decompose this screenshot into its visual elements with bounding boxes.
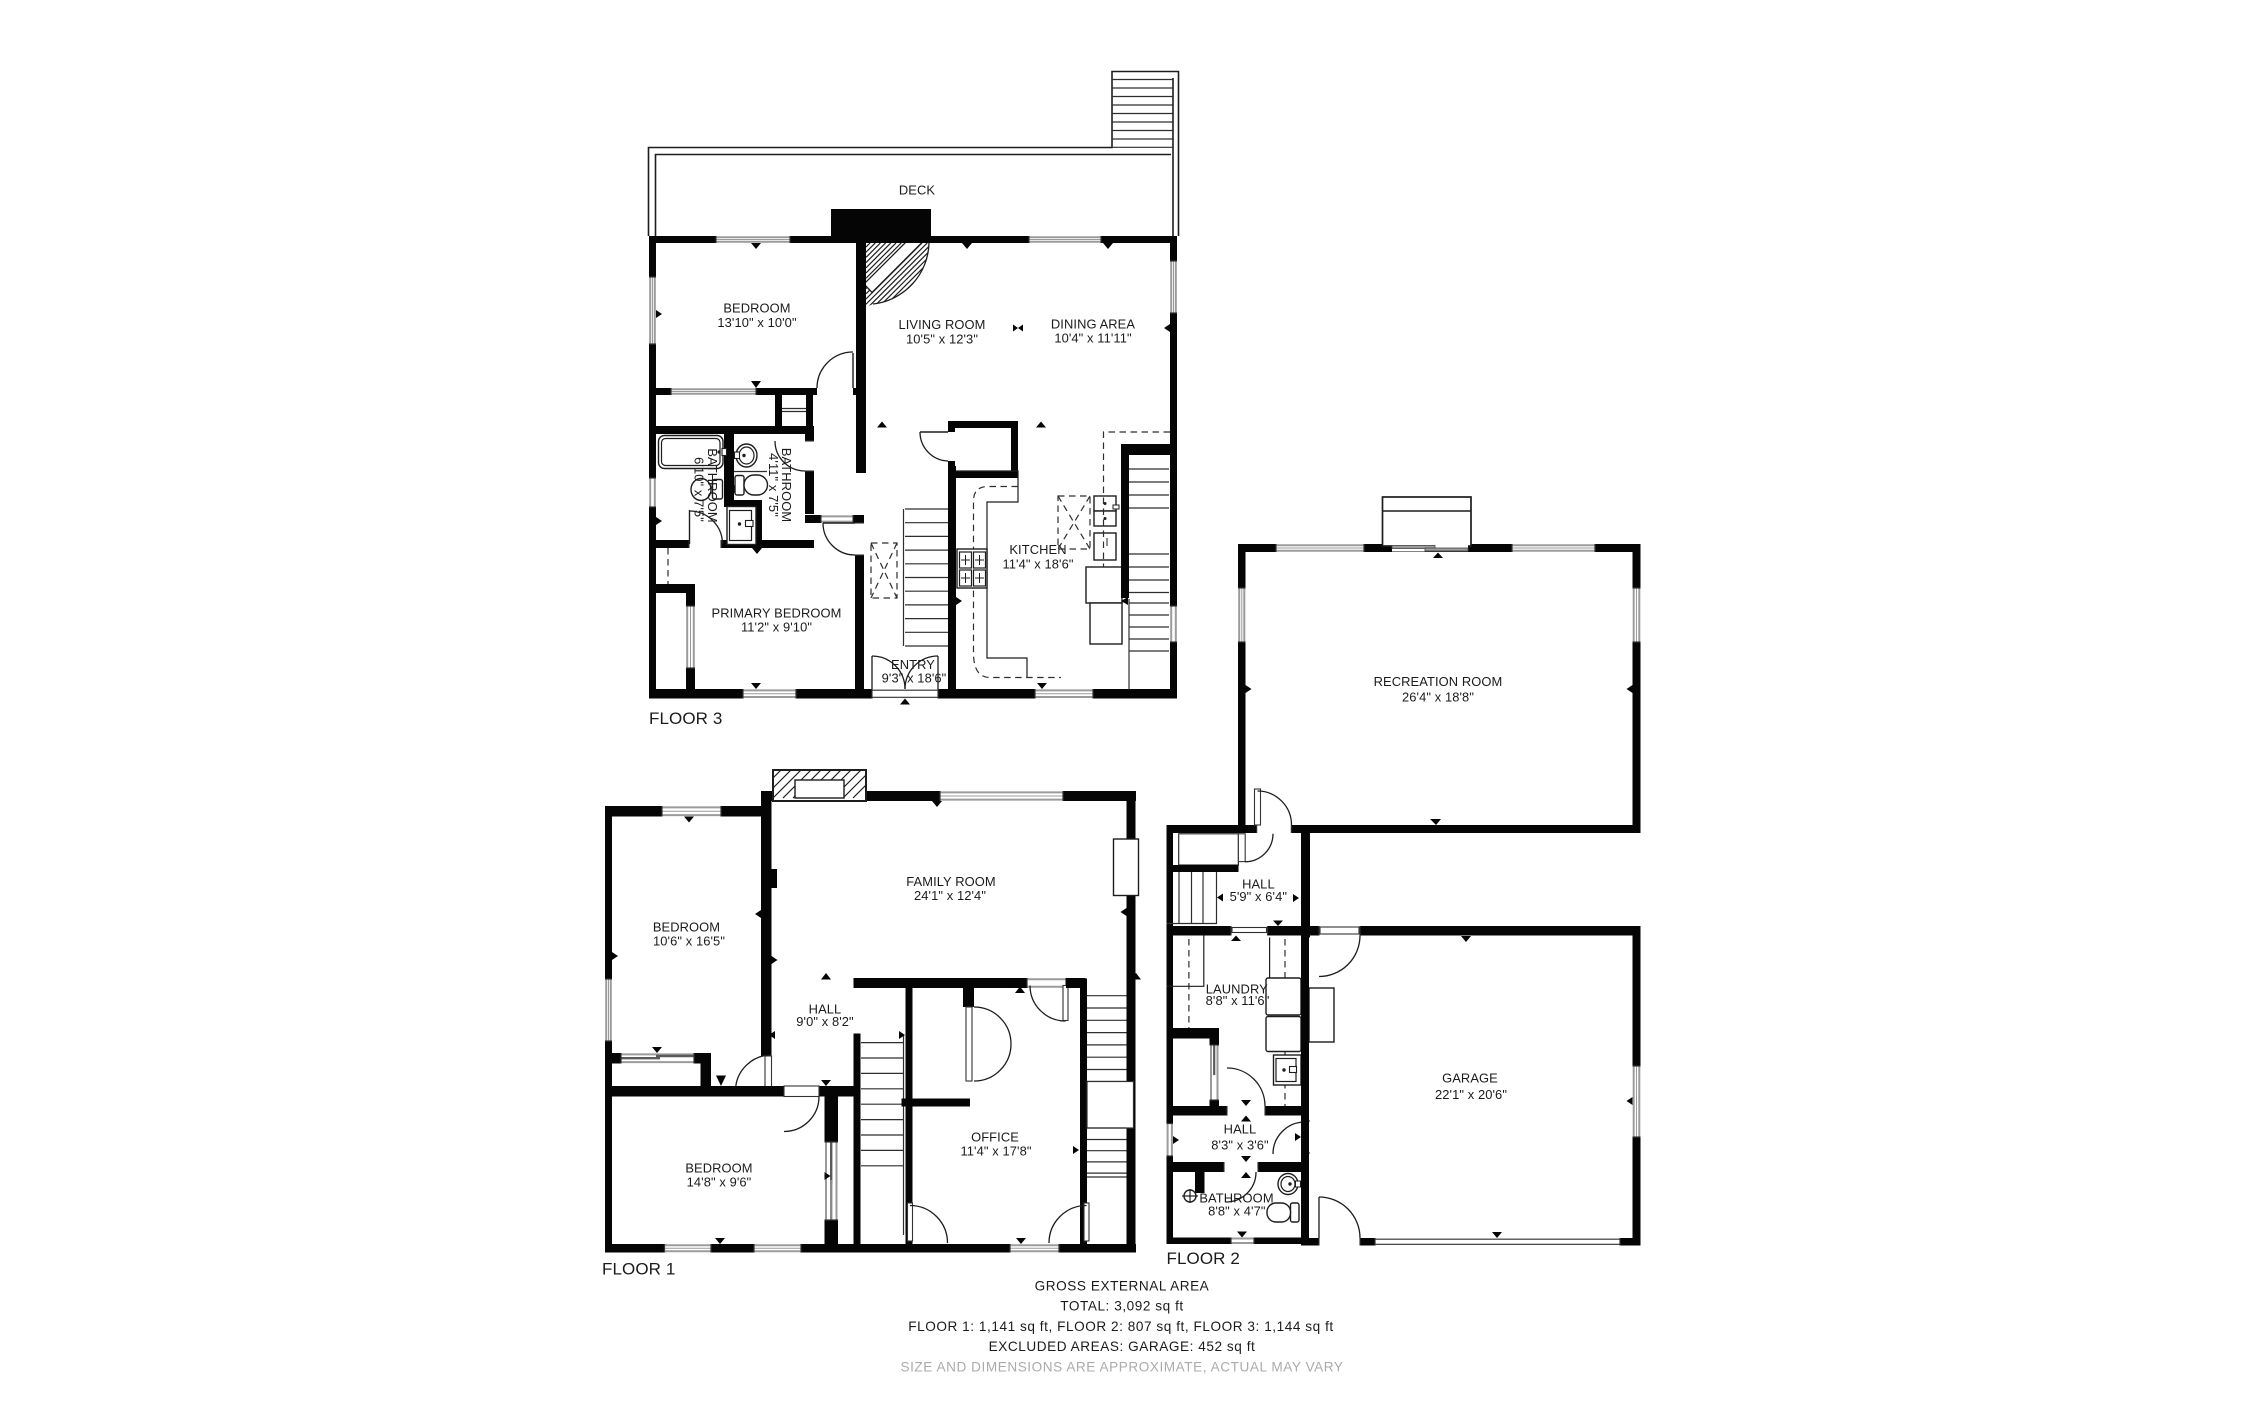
- svg-text:6'10" x 7'5": 6'10" x 7'5": [691, 457, 706, 522]
- svg-text:FLOOR 2: FLOOR 2: [1167, 1249, 1240, 1268]
- svg-text:4'11" x 7'5": 4'11" x 7'5": [766, 453, 781, 517]
- svg-text:14'8" x 9'6": 14'8" x 9'6": [687, 1175, 752, 1190]
- svg-text:BEDROOM: BEDROOM: [723, 301, 790, 316]
- svg-text:FAMILY ROOM: FAMILY ROOM: [906, 874, 995, 889]
- svg-text:5'9" x 6'4": 5'9" x 6'4": [1230, 889, 1288, 904]
- svg-text:GARAGE: GARAGE: [1442, 1071, 1498, 1086]
- svg-text:22'1" x 20'6": 22'1" x 20'6": [1435, 1087, 1507, 1102]
- svg-text:10'6" x 16'5": 10'6" x 16'5": [653, 934, 725, 949]
- svg-text:9'3" x 18'6": 9'3" x 18'6": [882, 671, 947, 686]
- svg-text:RECREATION ROOM: RECREATION ROOM: [1374, 674, 1503, 689]
- svg-text:8'3" x 3'6": 8'3" x 3'6": [1211, 1137, 1269, 1152]
- svg-text:8'8" x 11'6": 8'8" x 11'6": [1206, 993, 1270, 1008]
- svg-text:HALL: HALL: [1224, 1121, 1257, 1136]
- svg-text:PRIMARY BEDROOM: PRIMARY BEDROOM: [712, 606, 842, 621]
- svg-text:FLOOR 1: FLOOR 1: [602, 1260, 675, 1279]
- svg-text:OFFICE: OFFICE: [971, 1130, 1019, 1145]
- svg-text:11'4" x 17'8": 11'4" x 17'8": [960, 1144, 1031, 1159]
- svg-text:EXCLUDED AREAS: GARAGE: 452 sq: EXCLUDED AREAS: GARAGE: 452 sq ft: [989, 1339, 1256, 1354]
- svg-text:11'4" x 18'6": 11'4" x 18'6": [1002, 557, 1073, 572]
- svg-text:LIVING ROOM: LIVING ROOM: [898, 317, 985, 332]
- svg-text:SIZE AND DIMENSIONS ARE APPROX: SIZE AND DIMENSIONS ARE APPROXIMATE, ACT…: [900, 1360, 1343, 1375]
- svg-text:10'4" x 11'11": 10'4" x 11'11": [1054, 331, 1132, 346]
- svg-text:24'1" x 12'4": 24'1" x 12'4": [914, 888, 986, 903]
- svg-text:9'0" x 8'2": 9'0" x 8'2": [796, 1014, 854, 1029]
- svg-text:TOTAL: 3,092 sq ft: TOTAL: 3,092 sq ft: [1060, 1299, 1184, 1314]
- svg-text:GROSS EXTERNAL AREA: GROSS EXTERNAL AREA: [1035, 1278, 1210, 1293]
- svg-text:BEDROOM: BEDROOM: [653, 920, 720, 935]
- svg-text:DINING AREA: DINING AREA: [1051, 317, 1135, 332]
- svg-text:FLOOR 3: FLOOR 3: [649, 709, 722, 728]
- svg-text:26'4" x 18'8": 26'4" x 18'8": [1402, 690, 1474, 705]
- svg-text:13'10" x 10'0": 13'10" x 10'0": [717, 315, 797, 330]
- svg-text:FLOOR 1: 1,141 sq ft, FLOOR 2:: FLOOR 1: 1,141 sq ft, FLOOR 2: 807 sq ft…: [908, 1319, 1333, 1334]
- svg-text:DECK: DECK: [899, 183, 936, 198]
- svg-text:BEDROOM: BEDROOM: [685, 1161, 752, 1176]
- svg-text:11'2" x 9'10": 11'2" x 9'10": [741, 620, 812, 635]
- svg-text:10'5" x 12'3": 10'5" x 12'3": [906, 332, 978, 347]
- svg-text:8'8" x 4'7": 8'8" x 4'7": [1208, 1203, 1266, 1218]
